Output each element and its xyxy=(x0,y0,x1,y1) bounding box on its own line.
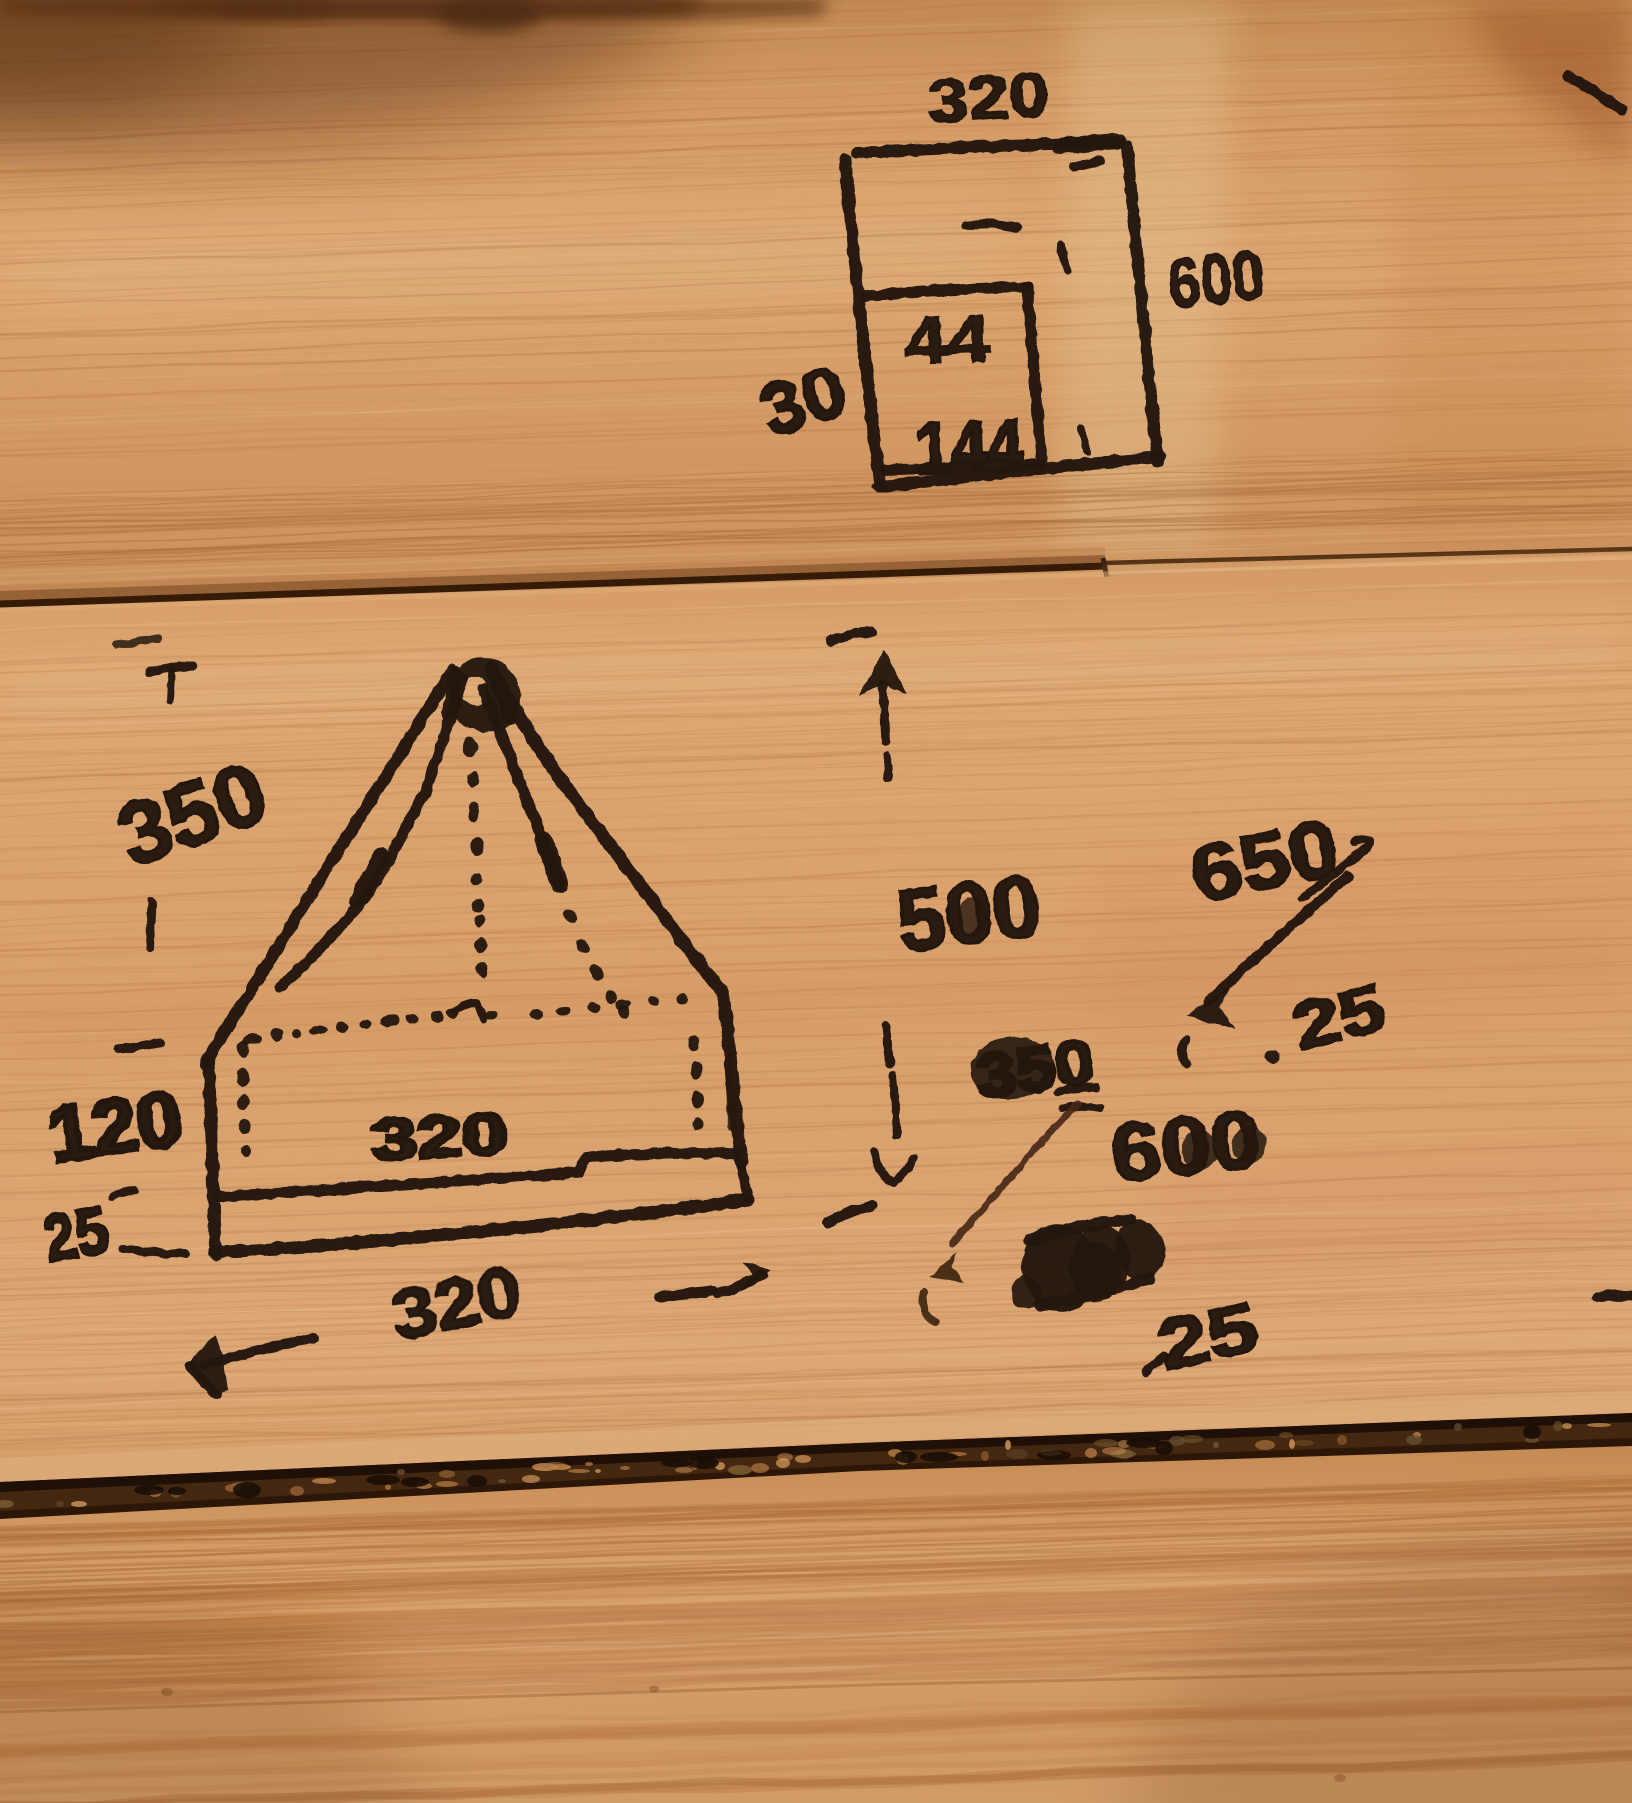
svg-text:320: 320 xyxy=(370,1101,508,1173)
svg-text:320: 320 xyxy=(925,60,1052,137)
svg-text:120: 120 xyxy=(42,1073,187,1179)
svg-text:144: 144 xyxy=(914,403,1025,490)
svg-text:25: 25 xyxy=(38,1192,114,1276)
svg-text:44: 44 xyxy=(903,301,992,378)
svg-text:600: 600 xyxy=(1164,235,1268,323)
